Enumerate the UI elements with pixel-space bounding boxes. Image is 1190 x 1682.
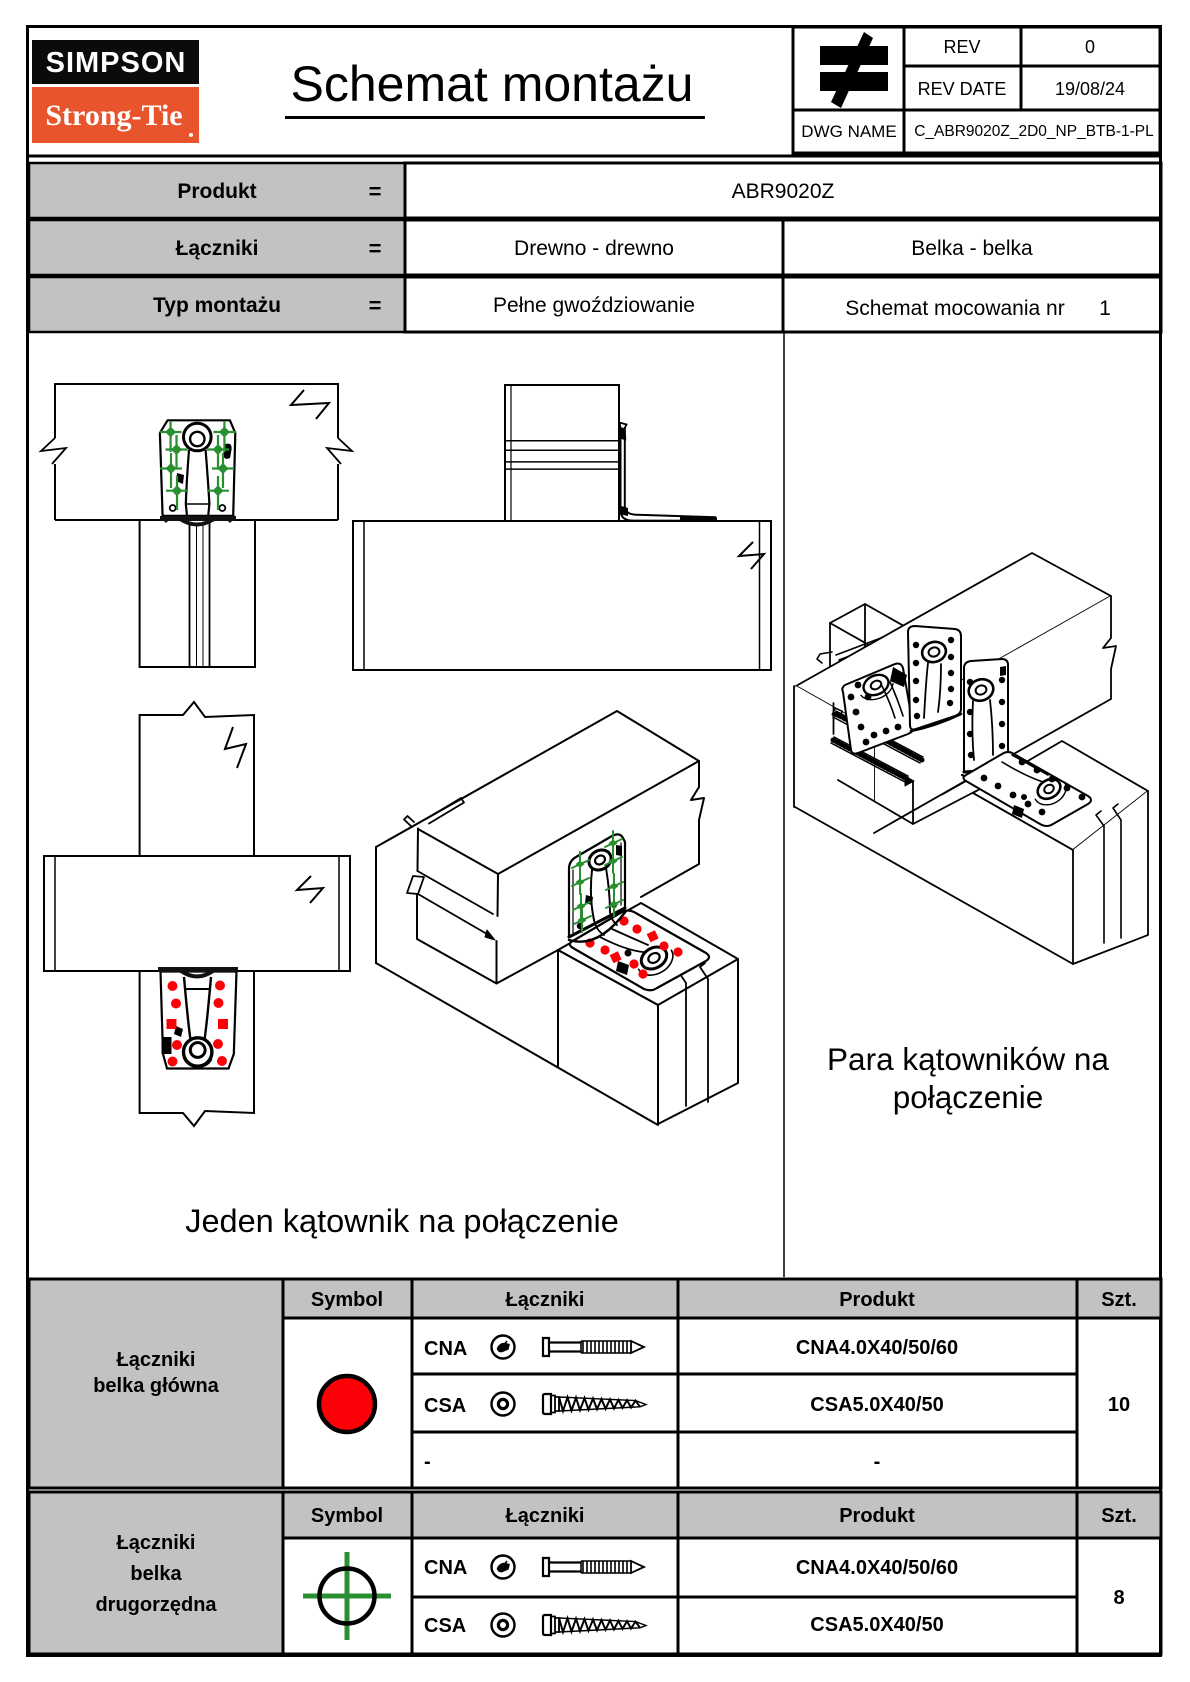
svg-text:1: 1 — [1099, 297, 1111, 320]
svg-text:=: = — [369, 179, 382, 204]
svg-text:19/08/24: 19/08/24 — [1055, 79, 1125, 99]
svg-text:DWG NAME: DWG NAME — [801, 122, 896, 141]
svg-text:Symbol: Symbol — [311, 1289, 383, 1311]
svg-text:Produkt: Produkt — [839, 1505, 915, 1527]
svg-text:CNA: CNA — [424, 1557, 467, 1579]
svg-text:Szt.: Szt. — [1101, 1289, 1137, 1311]
svg-text:Belka - belka: Belka - belka — [911, 237, 1033, 260]
svg-text:Symbol: Symbol — [311, 1505, 383, 1527]
svg-text:Typ montażu: Typ montażu — [153, 294, 281, 317]
svg-text:10: 10 — [1108, 1394, 1130, 1416]
svg-text:=: = — [369, 293, 382, 318]
svg-text:belka: belka — [130, 1563, 182, 1585]
svg-text:Jeden kątownik na połączenie: Jeden kątownik na połączenie — [185, 1203, 619, 1239]
svg-text:REV: REV — [943, 37, 980, 57]
svg-text:SIMPSON: SIMPSON — [46, 47, 187, 79]
svg-text:Łączniki: Łączniki — [176, 237, 259, 260]
svg-text:CSA5.0X40/50: CSA5.0X40/50 — [810, 1614, 943, 1636]
svg-text:0: 0 — [1085, 37, 1095, 57]
svg-text:Drewno - drewno: Drewno - drewno — [514, 237, 674, 260]
svg-text:Strong-Tie: Strong-Tie — [45, 99, 182, 132]
svg-text:CSA5.0X40/50: CSA5.0X40/50 — [810, 1394, 943, 1416]
svg-text:CSA: CSA — [424, 1615, 466, 1637]
svg-text:REV DATE: REV DATE — [918, 79, 1007, 99]
svg-text:=: = — [369, 236, 382, 261]
svg-text:Łączniki: Łączniki — [117, 1349, 196, 1371]
svg-text:8: 8 — [1113, 1587, 1124, 1609]
svg-text:Łączniki: Łączniki — [506, 1289, 585, 1311]
svg-text:Para kątowników na: Para kątowników na — [827, 1041, 1109, 1077]
svg-text:CNA4.0X40/50/60: CNA4.0X40/50/60 — [796, 1337, 958, 1359]
svg-text:Schemat mocowania nr: Schemat mocowania nr — [845, 297, 1064, 320]
svg-text:Łączniki: Łączniki — [506, 1505, 585, 1527]
svg-text:Produkt: Produkt — [177, 180, 256, 203]
svg-text:CNA4.0X40/50/60: CNA4.0X40/50/60 — [796, 1557, 958, 1579]
svg-text:C_ABR9020Z_2D0_NP_BTB-1-PL: C_ABR9020Z_2D0_NP_BTB-1-PL — [914, 123, 1154, 140]
svg-text:drugorzędna: drugorzędna — [95, 1594, 217, 1616]
svg-text:-: - — [874, 1451, 881, 1473]
svg-text:Pełne gwoździowanie: Pełne gwoździowanie — [493, 294, 695, 317]
svg-text:Schemat montażu: Schemat montażu — [291, 56, 694, 112]
svg-text:Łączniki: Łączniki — [117, 1532, 196, 1554]
svg-text:Szt.: Szt. — [1101, 1505, 1137, 1527]
svg-text:połączenie: połączenie — [893, 1079, 1044, 1115]
svg-text:ABR9020Z: ABR9020Z — [732, 180, 835, 203]
svg-text:Produkt: Produkt — [839, 1289, 915, 1311]
svg-text:CNA: CNA — [424, 1338, 467, 1360]
svg-text:CSA: CSA — [424, 1395, 466, 1417]
svg-text:belka główna: belka główna — [93, 1375, 219, 1397]
svg-text:-: - — [424, 1451, 431, 1473]
